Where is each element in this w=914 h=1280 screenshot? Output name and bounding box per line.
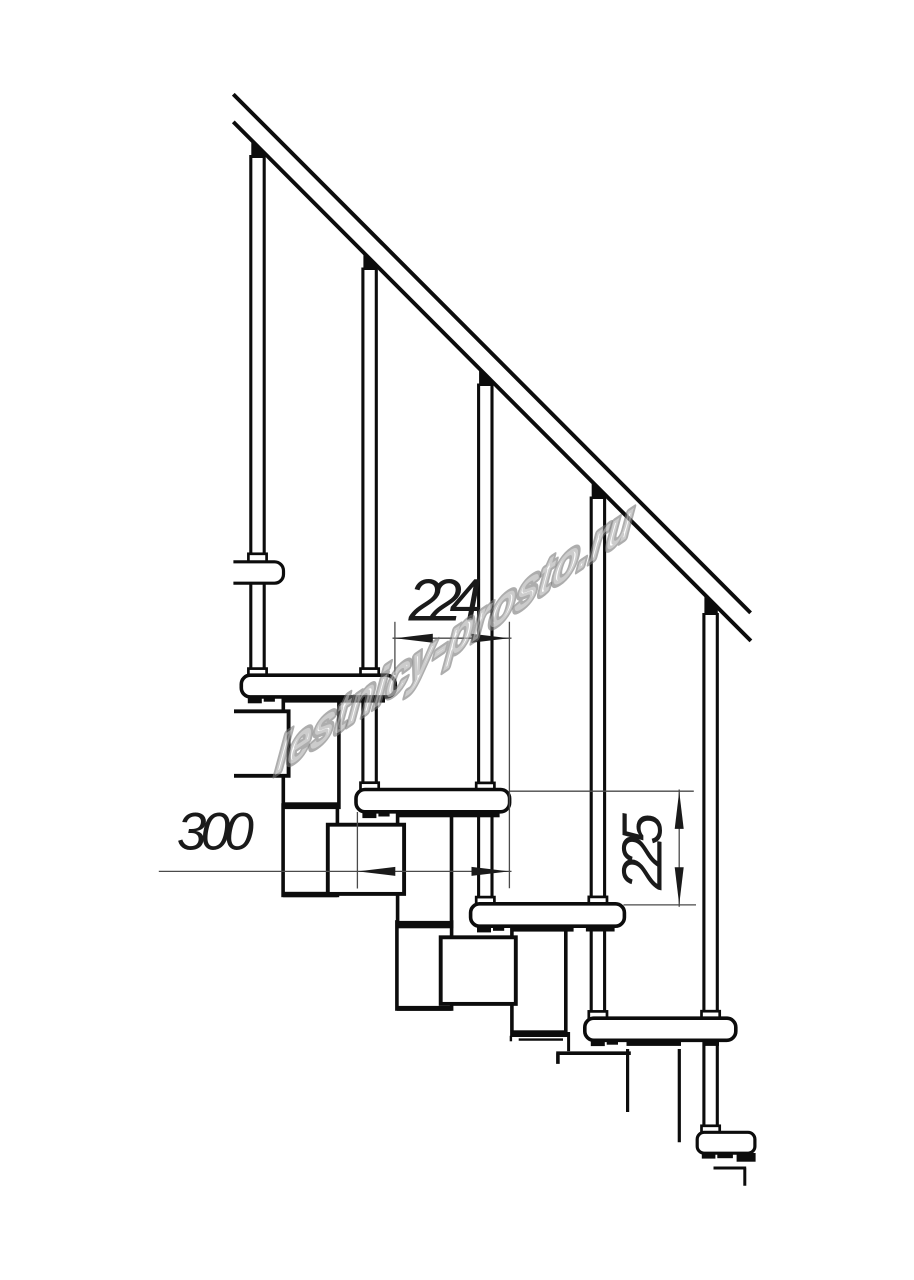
svg-text:225: 225 bbox=[611, 812, 674, 891]
svg-text:300: 300 bbox=[177, 803, 255, 862]
